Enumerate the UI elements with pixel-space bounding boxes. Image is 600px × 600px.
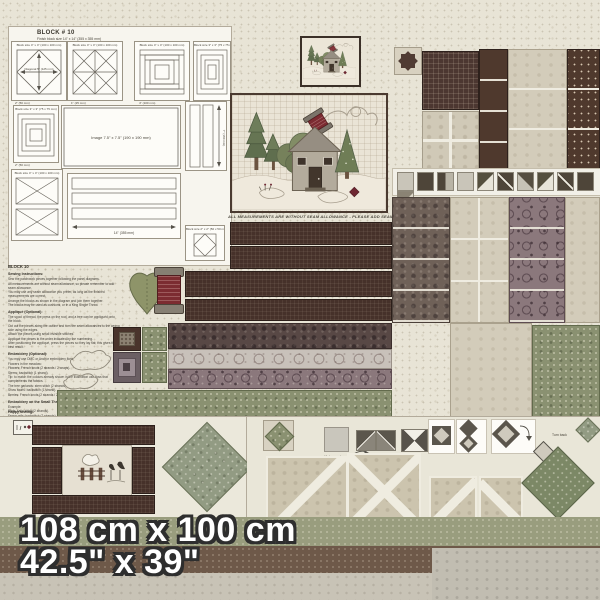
svg-text:Image 7.5" x 7.5" (190 x 190: Image 7.5" x 7.5" (190 x 190 mm) xyxy=(91,135,151,140)
hst-patch-light xyxy=(397,172,414,191)
bottom-right-section: Make sparks Turn back xyxy=(247,416,600,517)
dim-label: 1" (25 mm) xyxy=(71,101,86,105)
hst-patch-dark xyxy=(577,172,594,191)
bottom-left-section xyxy=(0,416,247,517)
gray-corner-block xyxy=(432,548,600,600)
diagram-label: Block size 3" x 3" (75 x 75 mm) xyxy=(194,43,230,47)
diagram-diamond-block: Block size 4" x 4" (100 x 100 mm) Diagon… xyxy=(11,41,67,101)
dim-label: 2" (50 mm) xyxy=(15,101,30,105)
step-card-3 xyxy=(491,419,536,454)
dotted-brown-column-1 xyxy=(479,49,508,170)
diagram-label: Block size 4" x 4" (100 x 100 mm) xyxy=(12,171,62,175)
green-square-2 xyxy=(142,352,167,383)
sashing-bar xyxy=(479,479,523,521)
hst-patch-light xyxy=(457,172,474,191)
hst-sample-a xyxy=(356,430,376,451)
svg-text:14" (355 mm): 14" (355 mm) xyxy=(114,231,134,235)
hst-patch-dark xyxy=(417,172,434,191)
hst-patch-diag-a xyxy=(477,172,494,191)
green-diamond-small xyxy=(575,417,600,442)
spool-body xyxy=(157,275,181,306)
tan-diagonal-block-3 xyxy=(429,476,477,521)
house-scene-illustration xyxy=(232,95,386,210)
diagram-label: Block size 4" x 4" (100 x 100 mm) xyxy=(68,43,122,47)
turn-arrow xyxy=(518,422,534,442)
measurements-note: ALL MEASUREMENTS ARE WITHOUT SEAM ALLOWA… xyxy=(228,214,390,219)
diagram-label: Block size 4" x 4" (100 x 100 mm) xyxy=(12,43,66,47)
step-card-2-diamond-b xyxy=(459,434,477,452)
diagram-long-strips: 14" (355 mm) xyxy=(67,173,181,239)
step-card-3-diamond xyxy=(492,420,520,448)
instruction-heading: Appliqué (Optional): xyxy=(8,310,120,314)
cloud-templates xyxy=(56,344,116,394)
spool-applique xyxy=(154,265,182,315)
instructions-title: BLOCK 10 xyxy=(8,265,120,269)
hst-patch-split xyxy=(437,172,454,191)
framed-block-1-center xyxy=(119,332,135,346)
diagram-log-cabin-b: Block size 3" x 3" (75 x 75 mm) xyxy=(193,41,231,101)
step-card-1-square xyxy=(432,426,451,445)
green-diamond-2 xyxy=(521,446,595,520)
frame-block-left xyxy=(32,447,62,494)
hourglass-sample xyxy=(401,429,428,452)
dotted-brown-column-2 xyxy=(567,49,600,170)
small-house-block xyxy=(300,36,361,87)
svg-text:7" (180 mm): 7" (180 mm) xyxy=(222,130,226,146)
framed-block-2 xyxy=(113,352,141,383)
fence-birds-embroidery xyxy=(63,446,131,495)
diagram-small-block: Block size 2" x 2" (50 x 50 mm) xyxy=(185,225,225,261)
legend-box xyxy=(13,420,33,435)
check-square-large xyxy=(422,51,479,110)
green-square-1 xyxy=(142,327,167,351)
fabric-strip-brown-3 xyxy=(185,271,392,297)
hst-patch-diag-b xyxy=(517,172,534,191)
diagram-label: Block size 2" x 2" (50 x 50 mm) xyxy=(186,227,224,231)
instruction-line: Cut out the pieces along the outline and… xyxy=(8,324,120,332)
triangle-block-drawing xyxy=(12,176,62,238)
diagram-label: Block size 3" x 3" (75 x 75 mm) xyxy=(14,107,58,111)
tan-diagonal-block-2 xyxy=(347,453,421,521)
small-block-drawing xyxy=(186,232,224,258)
instruction-line: You may use any seam allowance you prefe… xyxy=(8,290,120,298)
hst-patch-slash xyxy=(497,172,514,191)
hst-sample-strip xyxy=(392,168,600,196)
instruction-line: The blocks may be used as cushions, or i… xyxy=(8,303,120,307)
size-label-imperial: 42.5" x 39" xyxy=(20,543,200,582)
instruction-heading: Sewing Instructions: xyxy=(8,272,120,276)
frame-strip-top xyxy=(32,425,155,445)
dim-label: 4" (100 mm) xyxy=(139,101,155,105)
gray-square-sample xyxy=(324,427,349,452)
fabric-panel: BLOCK # 10 Finish block size 14" x 14" (… xyxy=(0,0,600,600)
step-card-1-diamond xyxy=(434,428,450,444)
svg-text:Diagonal 5" (125 mm): Diagonal 5" (125 mm) xyxy=(24,67,53,71)
instruction-line: The spool of thread, the press on the ro… xyxy=(8,315,120,323)
step-card-2 xyxy=(456,419,487,454)
log-cabin-c-drawing xyxy=(14,112,58,160)
legend-marks xyxy=(14,421,32,434)
step-card-2-center xyxy=(464,439,474,449)
instruction-line: Arrange the blocks as shown in the diagr… xyxy=(8,299,120,303)
framed-block-2-ring xyxy=(118,358,136,377)
fabric-strip-green xyxy=(57,390,392,418)
pattern-sheet: BLOCK # 10 Finish block size 14" x 14" (… xyxy=(8,26,232,266)
log-cabin-a-drawing xyxy=(135,48,189,98)
fabric-strip-brown-1 xyxy=(230,222,392,245)
tan-diagonal-block-4 xyxy=(479,476,523,521)
diagram-triangle-grid: Block size 4" x 4" (100 x 100 mm) xyxy=(67,41,123,101)
hst-patch-diag-a xyxy=(537,172,554,191)
image-box-drawing: Image 7.5" x 7.5" (190 x 190 mm) xyxy=(62,106,180,168)
instruction-line: Appliqué the pieces in the order indicat… xyxy=(8,337,120,341)
diamond-in-square-sample xyxy=(263,420,294,451)
closing-note: Happy sewing! xyxy=(8,410,33,414)
instruction-line: All measurements are without seam allowa… xyxy=(8,282,120,290)
step-card-1 xyxy=(428,419,455,454)
framed-block-2-center xyxy=(123,363,130,371)
tan-four-patch xyxy=(422,111,479,170)
embroidery-panel xyxy=(62,445,132,496)
house-panel xyxy=(230,93,388,213)
framed-block-1 xyxy=(113,327,141,351)
instruction-line: Sew the patchwork pieces together follow… xyxy=(8,277,120,281)
tall-strips-drawing: 7" (180 mm) xyxy=(186,102,226,170)
fabric-strip-pale-rings xyxy=(168,349,392,369)
green-block-extension xyxy=(532,325,600,418)
triangle-grid-drawing xyxy=(68,48,122,98)
fabric-strip-brown-2 xyxy=(230,246,392,269)
mauve-rings-column xyxy=(509,197,565,323)
step-card-3-center xyxy=(498,426,515,443)
diagram-image-box: Image 7.5" x 7.5" (190 x 190 mm) xyxy=(61,105,181,169)
diagram-label: Block size 4" x 4" (100 x 100 mm) xyxy=(135,43,189,47)
frame-block-right xyxy=(132,447,155,494)
turn-note: Turn back xyxy=(552,433,567,437)
diagram-tall-strips: 7" (180 mm) xyxy=(185,101,227,171)
taupe-floral-column xyxy=(392,197,450,323)
fabric-strip-brown-4 xyxy=(185,299,392,321)
hst-patch-slash xyxy=(557,172,574,191)
small-house-scene xyxy=(303,39,356,79)
sheet-title: BLOCK # 10 xyxy=(37,30,75,36)
sashing-bar xyxy=(429,476,477,521)
log-cabin-b-drawing xyxy=(194,48,230,98)
diagram-log-cabin-c: Block size 3" x 3" (75 x 75 mm) xyxy=(13,105,59,163)
diagram-triangle-block: Block size 4" x 4" (100 x 100 mm) xyxy=(11,169,63,241)
hst-sample-b xyxy=(376,430,396,451)
tan-block-extension xyxy=(450,323,532,418)
diagram-log-cabin-a: Block size 4" x 4" (100 x 100 mm) xyxy=(134,41,190,101)
star-block xyxy=(394,47,422,75)
green-diamond-1 xyxy=(162,422,253,513)
fabric-strip-mauve-dots xyxy=(168,369,392,389)
diamond-in-square-center xyxy=(265,422,295,452)
dim-label: 2" (50 mm) xyxy=(15,163,30,167)
tan-column-wide xyxy=(508,49,567,170)
fabric-strip-plum-floral xyxy=(168,323,392,349)
long-strips-drawing: 14" (355 mm) xyxy=(68,174,180,238)
diamond-block-drawing: Diagonal 5" (125 mm) xyxy=(12,48,66,98)
tan-column-3 xyxy=(565,197,600,323)
tan-column-2 xyxy=(450,197,509,323)
spool-cap-bottom xyxy=(154,304,184,314)
instruction-line: Attach the pieces using small invisible … xyxy=(8,332,120,336)
